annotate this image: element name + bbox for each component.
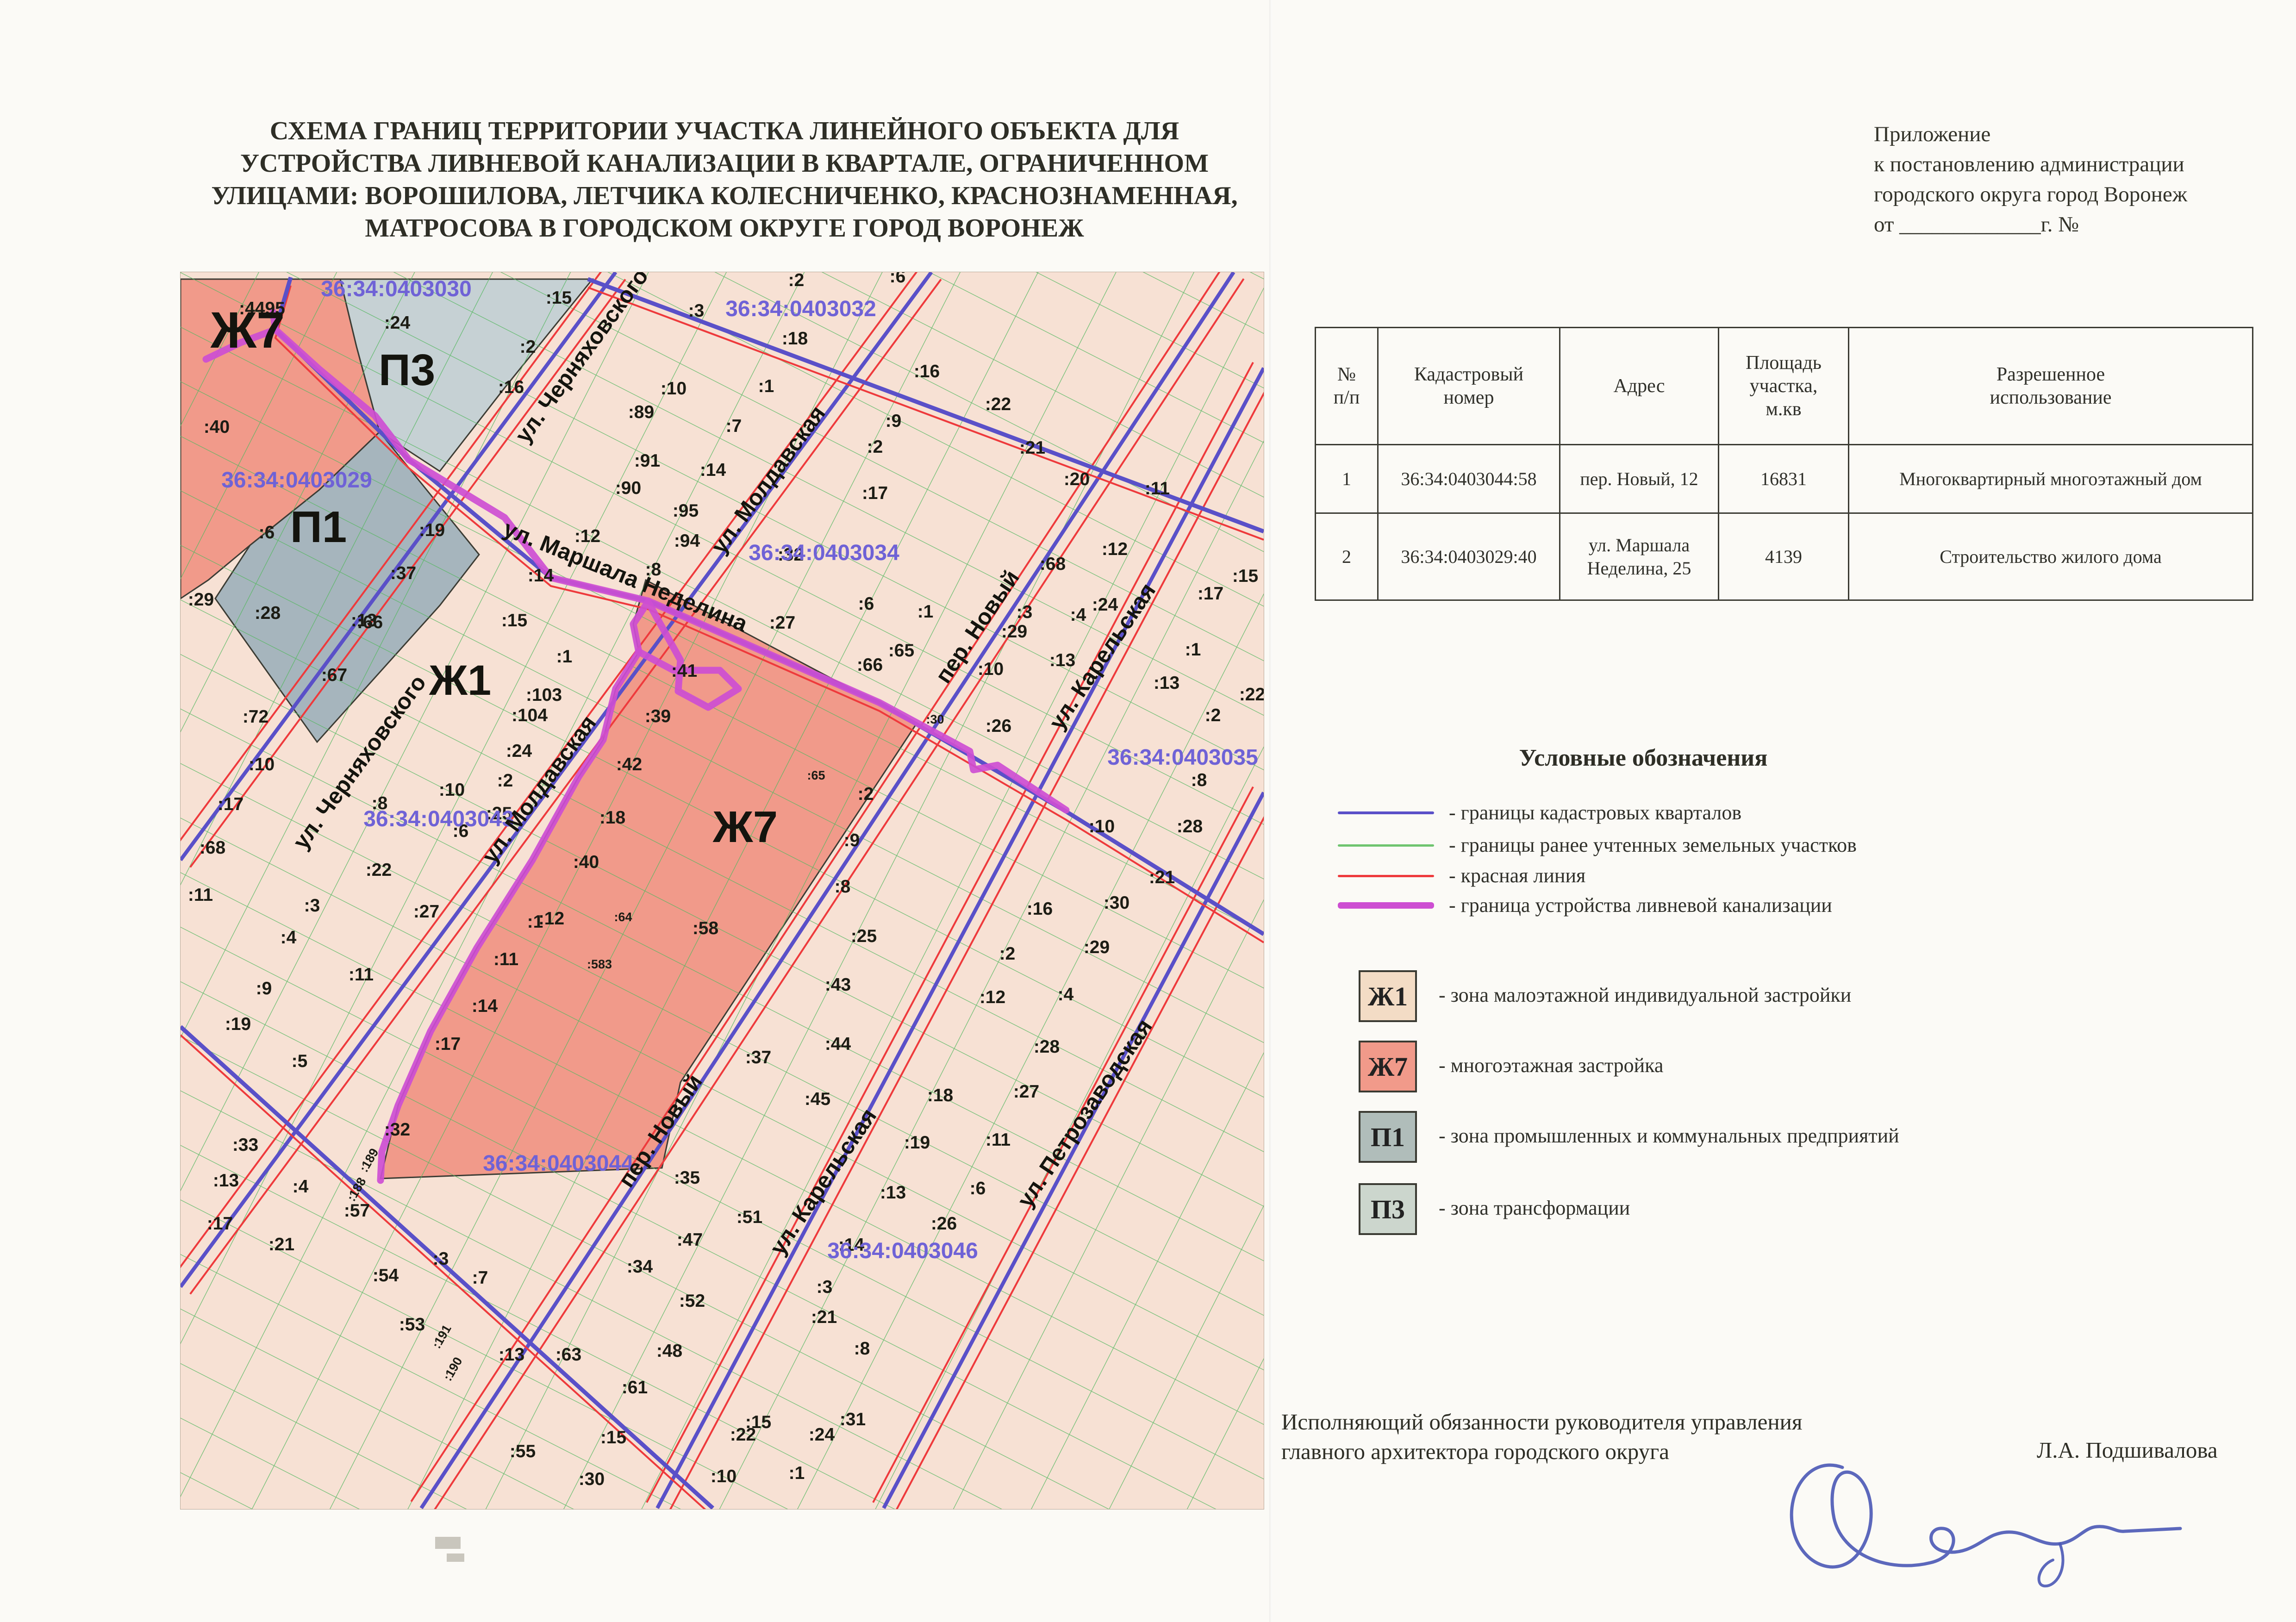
parcel-label: :26 (931, 1214, 957, 1234)
parcel-label: :18 (927, 1085, 953, 1105)
parcel-label: :12 (538, 909, 564, 929)
table-cell: 36:34:0403029:40 (1378, 513, 1560, 600)
parcel-label: :45 (805, 1089, 830, 1109)
legend-line-swatch (1338, 844, 1434, 847)
parcel-label: :54 (373, 1266, 399, 1285)
parcel-label: :91 (634, 451, 660, 471)
parcel-label: :10 (439, 780, 465, 800)
parcel-label: :66 (857, 655, 883, 675)
parcel-label: :2 (1205, 705, 1221, 725)
zone-swatch-П3: П3 (1359, 1183, 1417, 1235)
parcel-label: :17 (862, 483, 888, 503)
parcel-label: :29 (1001, 622, 1027, 642)
parcel-label: :21 (268, 1235, 294, 1254)
table-cell: Разрешенноеиспользование (1849, 328, 2253, 445)
parcel-label: :42 (616, 755, 642, 774)
parcel-label: :28 (255, 603, 281, 623)
parcels-table: №п/пКадастровыйномерАдресПлощадьучастка,… (1315, 327, 2253, 601)
parcel-label: :21 (1149, 867, 1175, 887)
parcel-label: :12 (980, 987, 1005, 1007)
parcel-label: :3 (688, 301, 705, 321)
parcel-label: :68 (200, 838, 225, 858)
parcel-label: :12 (1102, 539, 1128, 559)
parcel-label: :4 (1070, 605, 1086, 625)
parcel-label: :39 (645, 706, 671, 726)
table-cell: Многоквартирный многоэтажный дом (1849, 445, 2253, 513)
parcel-label: :22 (366, 860, 392, 880)
zone-label: - зона малоэтажной индивидуальной застро… (1439, 983, 1851, 1007)
parcel-label: :3 (433, 1249, 449, 1269)
parcel-label: :43 (825, 975, 851, 995)
parcel-label: :61 (622, 1378, 648, 1397)
parcel-label: :65 (888, 641, 914, 661)
parcel-label: :67 (321, 665, 347, 685)
parcel-label: :104 (512, 705, 548, 725)
parcel-label: :30 (579, 1469, 605, 1489)
parcel-label: :24 (809, 1425, 835, 1445)
scan-artifact (435, 1537, 461, 1549)
parcel-label: :10 (661, 379, 686, 399)
parcel-label: :37 (390, 563, 416, 583)
parcel-label: :10 (978, 659, 1004, 679)
text-line: СХЕМА ГРАНИЦ ТЕРРИТОРИИ УЧАСТКА ЛИНЕЙНОГ… (199, 115, 1250, 147)
parcel-label: :15 (501, 611, 527, 630)
parcel-label: :47 (677, 1230, 703, 1250)
quarter-number: 36:34:0403029 (221, 468, 372, 493)
parcel-label: :41 (671, 661, 697, 681)
parcel-label: :53 (399, 1315, 425, 1335)
parcel-label: :1 (556, 647, 573, 667)
legend-line-swatch (1338, 811, 1434, 814)
table-cell: Площадьучастка,м.кв (1719, 328, 1849, 445)
text-line: МАТРОСОВА В ГОРОДСКОМ ОКРУГЕ ГОРОД ВОРОН… (199, 212, 1250, 244)
parcel-label: :15 (1232, 566, 1258, 586)
parcel-label: :583 (587, 957, 612, 971)
table-cell: Строительство жилого дома (1849, 513, 2253, 600)
parcel-label: :15 (600, 1428, 626, 1447)
parcel-label: :15 (546, 288, 572, 308)
parcel-label: :21 (1019, 438, 1045, 458)
parcel-label: :8 (854, 1339, 870, 1359)
legend-title: Условные обозначения (1454, 744, 1833, 772)
legend-item-label: - границы ранее учтенных земельных участ… (1449, 833, 1857, 857)
cadastral-map[interactable]: :4495:24:40:29:6:19:37:66:13:28:14:15:67… (181, 272, 1264, 1509)
cadastral-map-svg: :4495:24:40:29:6:19:37:66:13:28:14:15:67… (181, 272, 1264, 1509)
parcel-label: :17 (207, 1214, 233, 1234)
parcel-label: :51 (736, 1207, 762, 1227)
parcel-label: :18 (599, 808, 625, 828)
parcel-label: :95 (673, 501, 699, 521)
parcel-label: :5 (292, 1051, 308, 1071)
zone-swatch-П1: П1 (1359, 1111, 1417, 1163)
parcel-label: :17 (218, 794, 243, 814)
parcel-label: :4 (281, 928, 297, 948)
legend-line-swatch (1338, 875, 1434, 877)
parcel-label: :1 (758, 376, 774, 396)
parcel-label: :20 (1064, 469, 1090, 489)
table-cell: 36:34:0403044:58 (1378, 445, 1560, 513)
parcel-label: :19 (904, 1133, 930, 1153)
parcel-label: :6 (259, 523, 275, 543)
legend-line-swatch (1338, 902, 1434, 909)
parcel-label: :17 (435, 1034, 461, 1054)
parcel-label: :12 (574, 526, 600, 546)
parcel-label: :57 (344, 1201, 370, 1221)
parcel-label: :89 (628, 402, 654, 422)
parcel-label: :28 (1034, 1037, 1060, 1057)
parcel-label: :19 (225, 1014, 251, 1034)
parcel-label: :27 (1013, 1082, 1039, 1102)
page-fold-line (1269, 0, 1272, 1622)
parcel-label: :64 (614, 910, 632, 924)
parcel-label: :2 (858, 784, 874, 804)
parcel-label: :52 (679, 1291, 705, 1311)
parcel-label: :13 (1049, 650, 1075, 670)
parcel-label: :58 (693, 918, 718, 938)
table-cell: 1 (1316, 445, 1378, 513)
parcel-label: :48 (656, 1341, 682, 1361)
parcel-label: :30 (1104, 893, 1129, 913)
table-row: 236:34:0403029:40ул. МаршалаНеделина, 25… (1316, 513, 2253, 600)
legend-item-label: - граница устройства ливневой канализаци… (1449, 893, 1832, 917)
parcel-label: :1 (917, 602, 934, 622)
text-line: городского округа город Воронеж (1874, 180, 2281, 210)
text-line: Приложение (1874, 119, 2281, 150)
parcel-label: :2 (999, 944, 1016, 964)
table-cell: Кадастровыйномер (1378, 328, 1560, 445)
parcel-label: :11 (349, 965, 374, 985)
parcel-label: :19 (419, 520, 445, 540)
text-line: от _____________г. № (1874, 210, 2281, 240)
table-cell: Адрес (1560, 328, 1719, 445)
parcel-label: :27 (413, 902, 439, 922)
zone-swatch-Ж7: Ж7 (1359, 1041, 1417, 1092)
parcel-label: :6 (890, 272, 906, 287)
parcel-label: :13 (499, 1345, 524, 1365)
parcel-label: :9 (886, 411, 902, 431)
text-line: Исполняющий обязанности руководителя упр… (1281, 1407, 2253, 1437)
handwritten-signature (1773, 1449, 2199, 1606)
text-line: УЛИЦАМИ: ВОРОШИЛОВА, ЛЕТЧИКА КОЛЕСНИЧЕНК… (199, 180, 1250, 212)
parcel-label: :24 (384, 313, 411, 333)
parcel-label: :55 (510, 1441, 536, 1461)
parcel-label: :2 (497, 771, 513, 791)
parcel-label: :32 (384, 1120, 410, 1140)
appendix-note: Приложениек постановлению администрацииг… (1874, 119, 2281, 240)
parcel-label: :13 (351, 611, 377, 630)
parcel-label: :28 (1177, 817, 1203, 836)
parcel-label: :11 (493, 949, 518, 969)
parcel-label: :8 (1191, 770, 1207, 790)
parcel-label: :29 (188, 590, 214, 610)
table-cell: пер. Новый, 12 (1560, 445, 1719, 513)
quarter-number: 36:34:0403046 (827, 1239, 978, 1263)
parcel-label: :16 (1027, 899, 1053, 919)
zone-letter-Ж7: Ж7 (210, 302, 285, 359)
legend-item-label: - красная линия (1449, 864, 1585, 887)
zone-letter-Ж7: Ж7 (712, 802, 778, 852)
parcel-label: :90 (615, 478, 641, 498)
parcel-label: :26 (986, 716, 1011, 736)
parcel-label: :13 (880, 1183, 906, 1203)
parcel-label: :44 (825, 1034, 851, 1054)
zone-letter-Ж1: Ж1 (429, 657, 491, 704)
table-cell: ул. МаршалаНеделина, 25 (1560, 513, 1719, 600)
table-cell: 2 (1316, 513, 1378, 600)
parcel-label: :6 (970, 1179, 986, 1198)
parcel-label: :10 (711, 1466, 736, 1486)
parcel-label: :13 (213, 1171, 239, 1191)
parcel-label: :9 (844, 830, 860, 850)
parcel-label: :22 (985, 394, 1011, 414)
parcel-label: :16 (914, 362, 940, 381)
parcel-label: :34 (627, 1257, 653, 1277)
quarter-number: 36:34:0403030 (321, 277, 472, 301)
parcel-label: :2 (788, 272, 805, 290)
quarter-number: 36:34:0403044 (483, 1151, 634, 1176)
parcel-label: :3 (1017, 602, 1033, 622)
parcel-label: :94 (674, 531, 700, 551)
parcel-label: :11 (986, 1130, 1011, 1150)
quarter-number: 36:34:0403032 (725, 297, 876, 321)
parcel-label: :1 (1185, 640, 1201, 660)
parcel-label: :3 (817, 1277, 833, 1297)
parcel-label: :72 (243, 707, 268, 727)
zone-label: - многоэтажная застройка (1439, 1054, 1663, 1077)
table-row: 136:34:0403044:58пер. Новый, 1216831Мног… (1316, 445, 2253, 513)
parcel-label: :4 (1058, 985, 1074, 1004)
parcel-label: :18 (782, 329, 808, 349)
parcel-label: :7 (472, 1268, 488, 1288)
parcel-label: :11 (1145, 479, 1170, 499)
parcel-label: :30 (926, 712, 944, 726)
parcel-label: :31 (840, 1410, 866, 1429)
parcel-label: :33 (232, 1135, 258, 1155)
table-cell: 4139 (1719, 513, 1849, 600)
parcel-label: :10 (249, 755, 275, 774)
parcel-label: :11 (188, 885, 213, 905)
parcel-label: :40 (573, 852, 599, 872)
legend-item-label: - границы кадастровых кварталов (1449, 801, 1741, 824)
zone-label: - зона трансформации (1439, 1196, 1630, 1220)
table-cell: 16831 (1719, 445, 1849, 513)
parcel-label: :6 (858, 594, 874, 614)
zone-letter-П1: П1 (290, 502, 347, 552)
scan-artifact (447, 1553, 464, 1562)
quarter-number: 36:34:0403035 (1107, 745, 1258, 770)
parcel-label: :103 (526, 685, 562, 705)
parcel-label: :2 (867, 437, 883, 457)
parcel-label: :68 (1040, 554, 1066, 574)
document-title: СХЕМА ГРАНИЦ ТЕРРИТОРИИ УЧАСТКА ЛИНЕЙНОГ… (199, 115, 1250, 244)
parcel-label: :3 (304, 896, 320, 916)
parcel-label: :29 (1084, 937, 1110, 957)
text-line: УСТРОЙСТВА ЛИВНЕВОЙ КАНАЛИЗАЦИИ В КВАРТА… (199, 147, 1250, 180)
parcel-label: :24 (1092, 595, 1118, 615)
quarter-number: 36:34:0403034 (749, 541, 899, 565)
table-cell: №п/п (1316, 328, 1378, 445)
parcel-label: :16 (498, 377, 524, 397)
zone-label: - зона промышленных и коммунальных предп… (1439, 1124, 1899, 1148)
parcel-label: :14 (528, 566, 554, 586)
parcel-label: :9 (256, 979, 272, 998)
parcel-label: :17 (1198, 584, 1223, 604)
parcel-label: :1 (789, 1463, 805, 1483)
parcel-label: :21 (811, 1307, 837, 1327)
parcel-label: :27 (769, 613, 795, 633)
parcel-label: :4 (293, 1177, 309, 1197)
parcel-label: :22 (1239, 685, 1264, 705)
parcel-label: :37 (745, 1048, 771, 1067)
parcel-label: :10 (1089, 817, 1115, 836)
parcel-label: :7 (726, 416, 742, 436)
zone-letter-П3: П3 (379, 345, 435, 395)
parcel-label: :65 (807, 768, 825, 782)
scanned-document-page: { "doc": { "title_lines": [ "СХЕМА ГРАНИ… (0, 0, 2296, 1622)
text-line: к постановлению администрации (1874, 150, 2281, 180)
parcel-label: :13 (1154, 673, 1179, 693)
parcel-label: :2 (520, 337, 536, 357)
parcel-label: :14 (700, 460, 726, 480)
parcel-label: :40 (204, 417, 230, 437)
parcel-label: :24 (506, 741, 532, 761)
parcel-grid (181, 272, 1264, 1509)
parcel-label: :35 (674, 1168, 700, 1188)
parcel-label: :63 (555, 1345, 581, 1365)
parcel-label: :8 (835, 877, 851, 897)
parcel-label: :14 (472, 996, 498, 1016)
zone-swatch-Ж1: Ж1 (1359, 970, 1417, 1022)
quarter-number: 36:34:0403043 (363, 807, 514, 831)
parcel-label: :25 (851, 926, 877, 946)
parcel-label: :22 (730, 1425, 756, 1445)
